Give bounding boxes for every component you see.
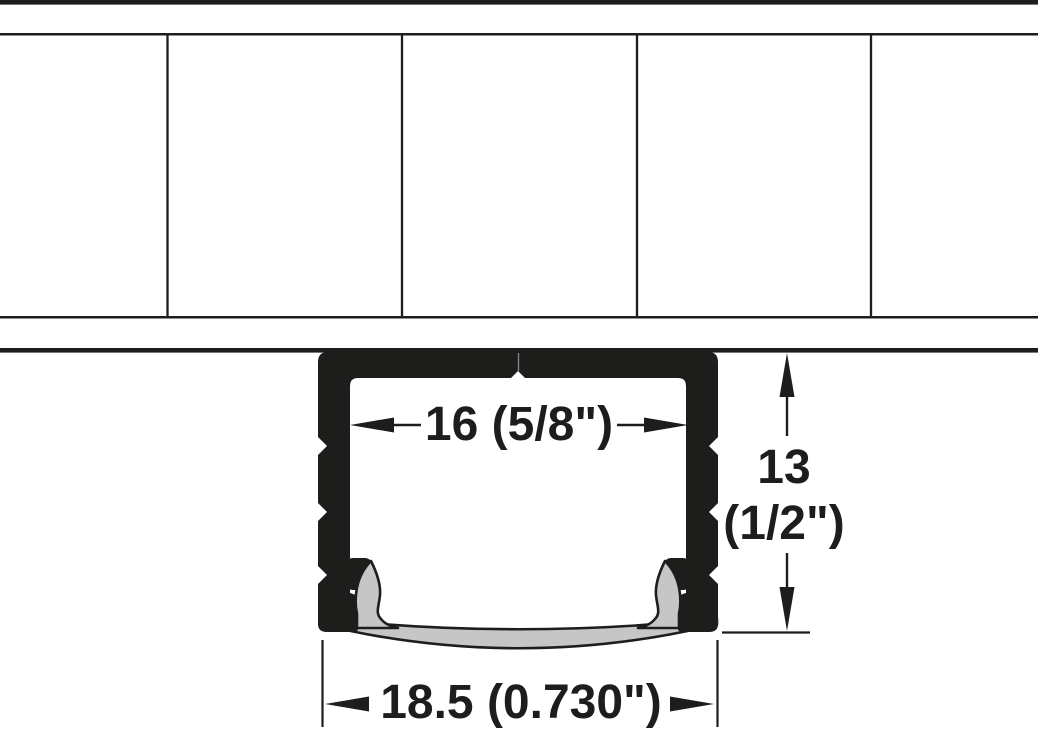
- outer-width-label: 18.5 (0.730"): [380, 676, 662, 729]
- diagram-canvas: 16 (5/8") 13 (1/2") 18.5 (0.730"): [0, 0, 1038, 730]
- lens-clip-left: [356, 561, 398, 628]
- aluminium-profile: [318, 352, 718, 648]
- lens-clip-right: [638, 561, 680, 628]
- dim-arrow-left-icon: [350, 418, 394, 433]
- dim-arrow-up-icon: [780, 353, 795, 397]
- dimension-outer-width: 18.5 (0.730"): [323, 640, 718, 729]
- dim-arrow-left-icon: [325, 697, 369, 712]
- ceiling-panel-section: [0, 0, 1038, 353]
- dimension-height: 13 (1/2"): [722, 353, 845, 633]
- dim-arrow-right-icon: [670, 697, 714, 712]
- panel-bottom-line: [0, 316, 1038, 319]
- height-label-inches: (1/2"): [723, 497, 844, 550]
- profile-dimension-diagram: 16 (5/8") 13 (1/2") 18.5 (0.730"): [0, 0, 1038, 730]
- inner-width-label: 16 (5/8"): [425, 398, 613, 451]
- dim-arrow-down-icon: [780, 587, 795, 631]
- dim-arrow-right-icon: [644, 418, 688, 433]
- mounting-surface-line: [0, 348, 1038, 353]
- panel-underside-line: [0, 33, 1038, 36]
- dimension-inner-width: 16 (5/8"): [350, 398, 688, 451]
- height-label-value: 13: [757, 441, 810, 494]
- ceiling-top-line: [0, 0, 1038, 5]
